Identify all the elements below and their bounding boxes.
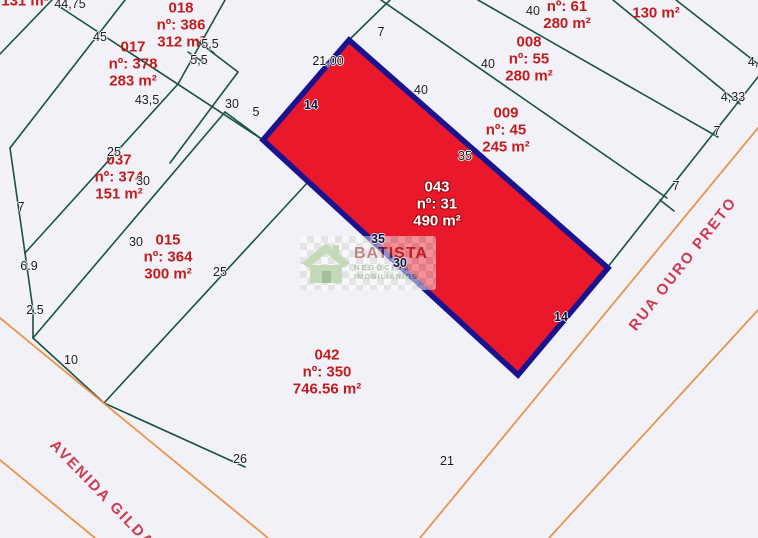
dimension-label: 35 (371, 232, 385, 246)
dimension-label: 30 (136, 174, 150, 188)
lot-label-line: 490 m² (413, 213, 461, 230)
dimension-label: 21 (440, 454, 454, 468)
lot-label-line: nº: 386 (157, 17, 206, 34)
cadastral-map: 131 m²018nº: 386312 m²017nº: 378283 m²nº… (0, 0, 758, 538)
dimension-label: 4,33 (748, 55, 758, 69)
parcel-boundary-line (104, 182, 308, 403)
dimension-label: 5,5 (190, 53, 207, 67)
lot-label-line: 280 m² (505, 68, 553, 85)
lot-label-line: nº: 61 (543, 0, 591, 15)
lot-label-line: 746.56 m² (293, 381, 361, 398)
lot-label-line: nº: 45 (482, 122, 530, 139)
dimension-label: 2.5 (26, 303, 43, 317)
lot-label-line: 042 (293, 347, 361, 364)
dimension-label: 21,00 (312, 54, 343, 68)
dimension-label: 10 (64, 353, 78, 367)
watermark-title: BATISTA (354, 246, 428, 262)
lot-label-line: nº: 364 (144, 249, 193, 266)
dimension-label: 5,5 (201, 37, 218, 51)
lot-label-line: 151 m² (95, 186, 144, 203)
dimension-label: 45 (93, 30, 107, 44)
lot-label-009: 009nº: 45245 m² (482, 105, 530, 156)
lot-label-line: 015 (144, 232, 193, 249)
parcel-boundary-line (676, 0, 758, 64)
lot-label-line: 245 m² (482, 139, 530, 156)
dimension-label: 40 (481, 57, 495, 71)
lot-label-line: nº: 31 (413, 196, 461, 213)
lot-label-008: 008nº: 55280 m² (505, 34, 553, 85)
lot-label-line: 008 (505, 34, 553, 51)
lot-label-017: 017nº: 378283 m² (109, 39, 158, 90)
lot-label-line: 300 m² (144, 266, 193, 283)
parcel-boundary-line (104, 403, 245, 467)
lot-label-line: 131 m² (1, 0, 49, 10)
lot-label-line: 018 (157, 0, 206, 17)
lot-label-line: 009 (482, 105, 530, 122)
dimension-label: 26 (233, 452, 247, 466)
lot-label-line: nº: 55 (505, 51, 553, 68)
dimension-label: 14 (304, 98, 318, 112)
dimension-label: 30 (393, 256, 407, 270)
street-edge-line (0, 318, 268, 538)
lot-label-042: 042nº: 350746.56 m² (293, 347, 361, 398)
dimension-label: 25 (213, 265, 227, 279)
dimension-label: 30 (225, 97, 239, 111)
lot-label-line: 017 (109, 39, 158, 56)
parcel-boundary-line (660, 200, 674, 211)
dimension-label: 4,33 (721, 90, 745, 104)
house-icon (300, 241, 352, 285)
watermark-logo: BATISTA NEGÓCIOS IMOBILIÁRIOS (300, 236, 436, 290)
lot-label-line: 312 m² (157, 34, 206, 51)
dimension-label: 43,5 (135, 93, 159, 107)
dimension-label: 5 (253, 105, 260, 119)
lot-label-line: 283 m² (109, 73, 158, 90)
lot-label-line: 043 (413, 179, 461, 196)
lot-label-018: 018nº: 386312 m² (157, 0, 206, 51)
lot-label-line: nº: 378 (109, 56, 158, 73)
dimension-label: 7 (18, 200, 25, 214)
lot-label-line: 280 m² (543, 15, 591, 32)
lot-label-line: 130 m² (632, 5, 680, 22)
dimension-label: 30 (129, 235, 143, 249)
lot-label-130: 130 m² (632, 5, 680, 22)
dimension-label: 7 (714, 124, 721, 138)
lot-label-top-cut: nº: 61280 m² (543, 0, 591, 32)
dimension-label: 40 (526, 4, 540, 18)
dimension-label: 7 (378, 25, 385, 39)
lot-label-corner-cut: 131 m² (1, 0, 49, 10)
dimension-label: 44,75 (54, 0, 85, 11)
watermark-subtitle-1: NEGÓCIOS (354, 264, 428, 272)
watermark-subtitle-2: IMOBILIÁRIOS (354, 273, 428, 281)
lot-label-line: nº: 350 (293, 364, 361, 381)
dimension-label: 14 (554, 310, 568, 324)
dimension-label: 7 (673, 179, 680, 193)
lot-label-043: 043nº: 31490 m² (413, 179, 461, 230)
dimension-label: 6.9 (20, 259, 37, 273)
dimension-label: 25 (107, 145, 121, 159)
parcel-boundary-line (33, 338, 104, 403)
lot-label-015: 015nº: 364300 m² (144, 232, 193, 283)
dimension-label: 35 (458, 149, 472, 163)
dimension-label: 40 (414, 83, 428, 97)
